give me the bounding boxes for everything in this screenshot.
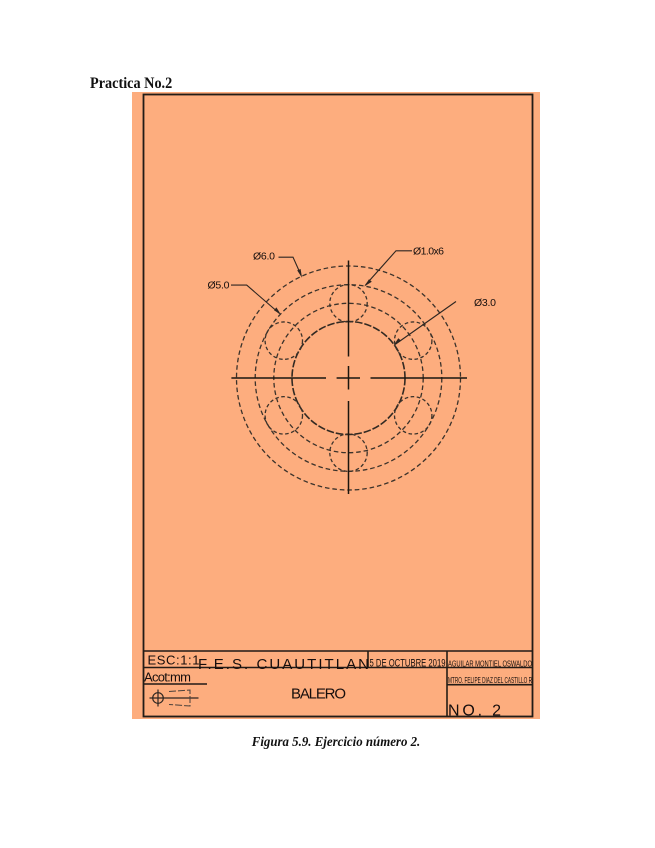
svg-text:Acot:mm: Acot:mm	[144, 670, 191, 685]
svg-text:Ø6.0: Ø6.0	[253, 251, 275, 263]
svg-text:Ø3.0: Ø3.0	[474, 297, 496, 309]
svg-text:ESC:1:1: ESC:1:1	[148, 653, 200, 668]
svg-text:NO. 2: NO. 2	[448, 703, 501, 720]
svg-text:5 DE OCTUBRE 2019: 5 DE OCTUBRE 2019	[370, 658, 446, 670]
svg-text:F.E.S. CUAUTITLAN: F.E.S. CUAUTITLAN	[198, 656, 369, 673]
svg-text:BALERO: BALERO	[291, 686, 346, 703]
svg-text:AGUILAR MONTIEL OSWALDO: AGUILAR MONTIEL OSWALDO	[448, 659, 532, 669]
svg-text:Ø5.0: Ø5.0	[208, 280, 230, 292]
svg-text:MTRO. FELIPE DIAZ DEL CASTILLO: MTRO. FELIPE DIAZ DEL CASTILLO R	[448, 676, 532, 685]
svg-text:Ø1.0x6: Ø1.0x6	[413, 246, 444, 258]
